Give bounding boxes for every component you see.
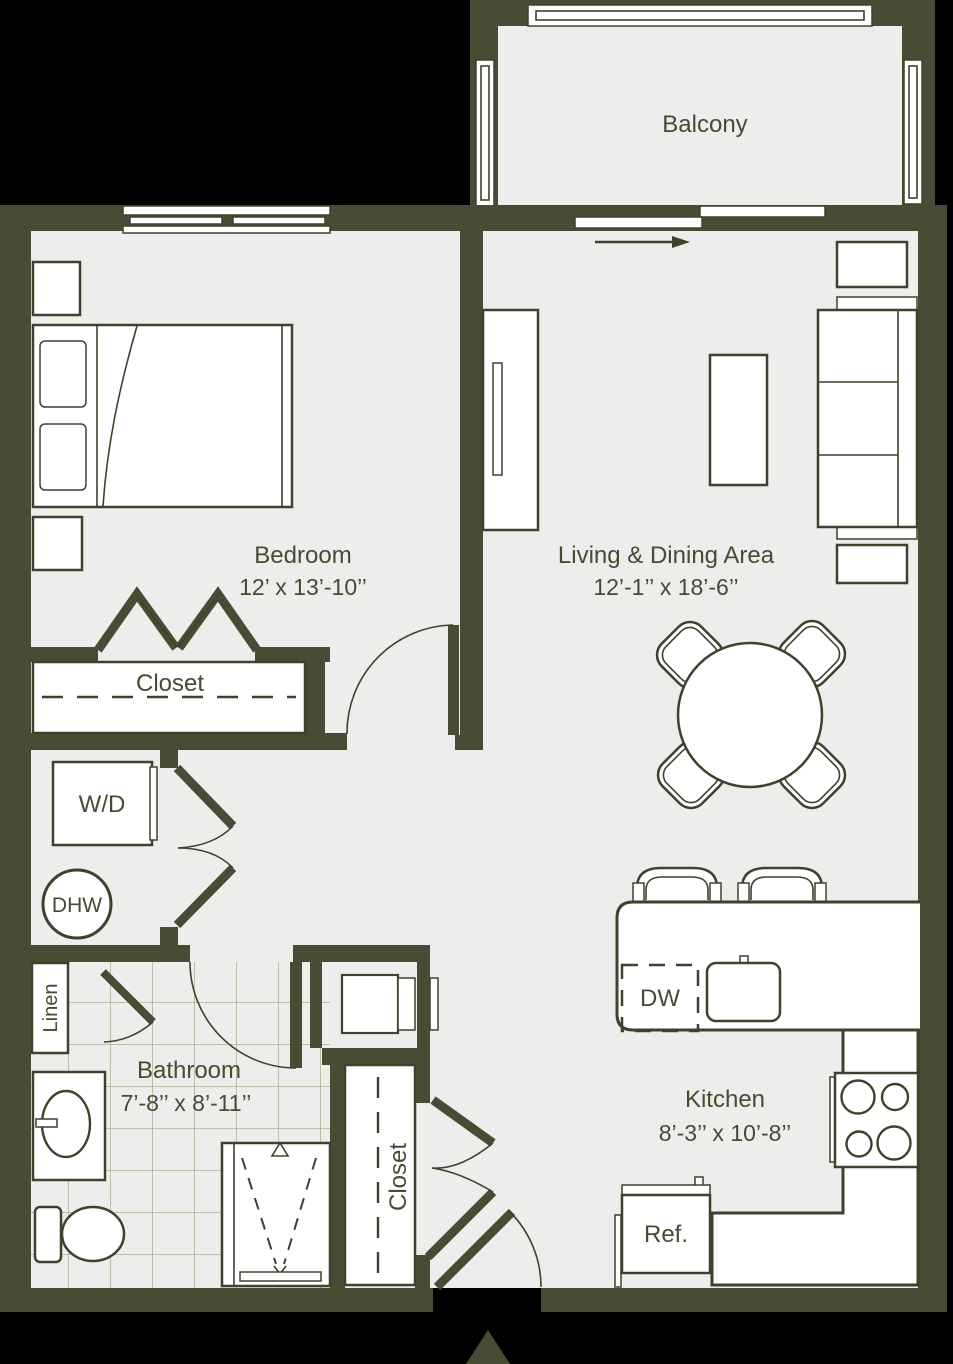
toilet-bowl-icon — [62, 1207, 124, 1261]
bedroom-dimensions: 12’ x 13’-10’’ — [239, 574, 367, 600]
sofa-arm-bottom — [837, 527, 917, 539]
sliding-door-panel-inner-icon — [575, 217, 702, 228]
fridge-door-panel-icon — [615, 1215, 621, 1287]
utility-door-panel — [430, 978, 438, 1030]
coffee-table — [710, 355, 767, 485]
entry-door-opening — [433, 1288, 541, 1312]
utility-unit-panel — [398, 978, 415, 1030]
laundry-stub-top-wall — [160, 750, 178, 768]
bathroom-north-wall — [0, 945, 190, 962]
living-dining-label: Living & Dining Area — [558, 542, 775, 569]
utility-right-wall — [417, 962, 430, 1048]
balcony-label: Balcony — [662, 111, 747, 138]
pillow-top-icon — [40, 341, 86, 407]
fridge-top-icon — [622, 1185, 710, 1195]
refrigerator-label: Ref. — [644, 1221, 688, 1248]
end-table-bottom — [837, 545, 907, 583]
tv-console — [483, 310, 538, 530]
balcony — [470, 0, 935, 212]
stool-leg-right-icon — [815, 883, 826, 902]
bedroom-window-icon — [123, 206, 330, 215]
closet-stub-left-wall — [31, 647, 98, 662]
sliding-door-panel-outer-icon — [700, 206, 825, 217]
washer-dryer-door-panel — [150, 767, 157, 840]
water-heater-label: DHW — [52, 894, 102, 917]
bedroom-window-sash-left-icon — [130, 217, 222, 224]
shower — [222, 1143, 330, 1286]
bedroom-south-wall — [31, 733, 347, 750]
entry-closet-label: Closet — [385, 1143, 412, 1211]
sink-faucet-icon — [36, 1119, 57, 1127]
bedroom-window-sill-icon — [123, 226, 330, 233]
entry-closet-stub-top-wall — [415, 1048, 430, 1103]
sofa-arm-top — [837, 297, 917, 310]
living-dining-dimensions: 12’-1’’ x 18’-6’’ — [593, 574, 738, 600]
stool-leg-left-icon — [633, 883, 644, 902]
kitchen-sink — [707, 963, 780, 1021]
laundry-stub-bottom-wall — [160, 927, 178, 945]
entry-closet-left-wall — [330, 1065, 345, 1288]
stool-back-outer-icon — [742, 868, 822, 900]
balcony-window-left-icon — [476, 60, 494, 206]
balcony-window-top-icon — [528, 5, 872, 26]
dining-table — [678, 643, 822, 787]
bar-stool-right — [738, 868, 826, 902]
tv-icon — [493, 363, 502, 475]
utility-north-wall — [293, 945, 430, 962]
bedroom-window-sash-right-icon — [233, 217, 325, 224]
utility-unit — [342, 975, 398, 1033]
bedroom-door-jamb-wall — [455, 735, 483, 750]
bedroom-door-leaf — [448, 625, 459, 735]
bedroom-living-divider-wall — [460, 231, 483, 735]
washer-dryer-label: W/D — [79, 791, 126, 818]
bathroom-dimensions: 7’-8’’ x 8’-11’’ — [121, 1090, 252, 1116]
nightstand-bottom — [33, 517, 82, 570]
entry-closet-north-wall — [322, 1048, 430, 1065]
stool-back-outer-icon — [637, 868, 717, 900]
floor-plan-canvas: Balcony Bedroom 12’ x 13’-10’’ Living & … — [0, 0, 953, 1364]
kitchen-label: Kitchen — [685, 1086, 765, 1113]
sofa — [818, 297, 917, 539]
kitchen-dimensions: 8’-3’’ x 10’-8’’ — [659, 1120, 792, 1146]
bathroom-label: Bathroom — [137, 1057, 241, 1084]
stove — [835, 1073, 918, 1167]
balcony-window-right-icon — [904, 60, 922, 204]
closet-side-wall — [305, 647, 325, 733]
stool-leg-left-icon — [738, 883, 749, 902]
bed — [33, 325, 292, 507]
sofa-body — [818, 310, 917, 527]
stool-leg-right-icon — [710, 883, 721, 902]
linen-label: Linen — [40, 984, 62, 1033]
end-table-top — [837, 242, 907, 287]
utility-left-wall — [310, 962, 322, 1048]
bedroom-closet-label: Closet — [136, 670, 204, 697]
bedroom-label: Bedroom — [254, 542, 351, 569]
pillow-bottom-icon — [40, 424, 86, 490]
entry-closet-stub-bottom-wall — [415, 1255, 430, 1288]
dishwasher-label: DW — [640, 985, 680, 1012]
toilet-tank-icon — [35, 1207, 61, 1262]
floor-plan: Balcony Bedroom 12’ x 13’-10’’ Living & … — [0, 0, 953, 1364]
bar-stool-left — [633, 868, 721, 902]
bathroom-door-leaf — [290, 962, 302, 1068]
nightstand-top — [33, 262, 80, 315]
shower-curb-icon — [240, 1272, 321, 1281]
